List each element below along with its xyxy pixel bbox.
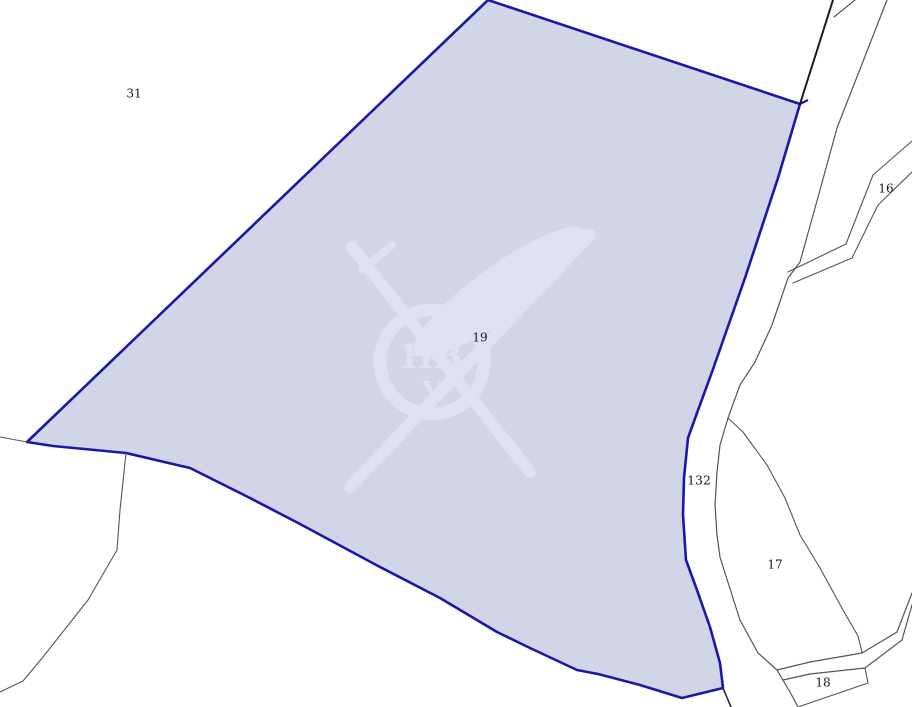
parcel-label-18: 18 xyxy=(815,676,830,690)
cadastral-map[interactable]: НВУ 3119161321718 xyxy=(0,0,912,707)
boundary-road-16-upper xyxy=(788,141,912,272)
boundary-line-below-parcel-corner xyxy=(723,688,731,707)
cadastral-map-canvas[interactable]: НВУ 3119161321718 xyxy=(0,0,912,707)
boundary-road-br-upper xyxy=(777,593,912,670)
boundary-parcel-18-right-edge xyxy=(865,668,868,683)
parcel-label-31: 31 xyxy=(126,87,141,101)
boundary-road-br-lower xyxy=(783,605,912,680)
boundary-parcel-18-bottom-edge xyxy=(798,683,868,707)
parcel-label-132: 132 xyxy=(687,473,711,488)
boundary-divider-bottom-left xyxy=(0,453,126,692)
boundary-sliver-line-top xyxy=(834,0,855,17)
boundary-parcel-17-curve xyxy=(728,418,862,652)
parcel-label-17: 17 xyxy=(767,558,782,572)
parcel-label-19: 19 xyxy=(472,331,487,345)
boundary-dark-line-top-right xyxy=(800,0,833,104)
watermark-monogram-top: НВ xyxy=(402,337,463,377)
boundary-edge-left-to-corner xyxy=(0,437,27,442)
parcel-label-16: 16 xyxy=(878,182,893,196)
watermark-monogram-bottom: У xyxy=(421,377,442,407)
